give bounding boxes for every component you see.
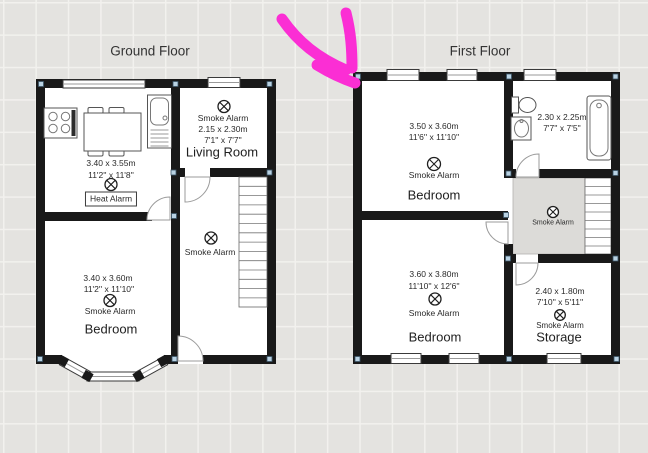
hallway-smoke-alarm-icon xyxy=(205,232,217,244)
storage-smoke-alarm-icon xyxy=(555,310,566,321)
living-room-smoke-alarm-icon xyxy=(218,101,230,113)
storage-dims-metric: 2.40 x 1.80m xyxy=(535,287,584,296)
toilet-icon xyxy=(512,97,537,113)
bedroom-gf-dims-imperial: 11'2'' x 11'10'' xyxy=(84,285,135,294)
kitchen-heat-alarm-icon xyxy=(105,179,117,191)
bedroom-front-name: Bedroom xyxy=(408,189,461,202)
landing-alarm-label: Smoke Alarm xyxy=(532,220,574,227)
dining-table-icon xyxy=(84,108,141,157)
storage-name: Storage xyxy=(536,331,582,344)
living-room-dims-metric: 2.15 x 2.30m xyxy=(198,125,247,134)
living-room-alarm-label: Smoke Alarm xyxy=(198,113,249,122)
landing-smoke-alarm-icon xyxy=(548,207,559,218)
living-room-name: Living Room xyxy=(186,146,258,159)
bedroom-gf-smoke-alarm-icon xyxy=(104,295,116,307)
bedroom-back-smoke-alarm-icon xyxy=(429,293,441,305)
bedroom-back-alarm-label: Smoke Alarm xyxy=(409,309,460,318)
kitchen-dims-metric: 3.40 x 3.55m xyxy=(86,159,135,168)
first-floor-stairs xyxy=(585,178,611,254)
bathroom-dims-imperial: 7'7'' x 7'5'' xyxy=(543,124,581,133)
bedroom-back-name: Bedroom xyxy=(409,331,462,344)
bedroom-front-smoke-alarm-icon xyxy=(428,158,441,171)
first-floor-title: First Floor xyxy=(450,44,511,58)
bedroom-back-dims-metric: 3.60 x 3.80m xyxy=(409,270,458,279)
heat-alarm-label: Heat Alarm xyxy=(85,191,137,206)
bedroom-back-dims-imperial: 11'10'' x 12'6'' xyxy=(408,281,459,290)
bathroom-dims-metric: 2.30 x 2.25m xyxy=(537,113,586,122)
kitchen-dims-imperial: 11'2'' x 11'8'' xyxy=(88,170,134,179)
ground-floor-stairs xyxy=(239,177,267,307)
storage-dims-imperial: 7'10'' x 5'11'' xyxy=(537,297,583,306)
annotation-arrow-icon xyxy=(282,13,355,83)
bedroom-front-dims-metric: 3.50 x 3.60m xyxy=(409,122,458,131)
ground-floor-title: Ground Floor xyxy=(110,44,190,58)
hallway-alarm-label: Smoke Alarm xyxy=(185,248,236,257)
floor-plan-drawing xyxy=(0,0,648,453)
washbasin-icon xyxy=(511,117,531,140)
bedroom-gf-alarm-label: Smoke Alarm xyxy=(85,307,136,316)
stove-icon xyxy=(44,108,77,138)
floor-plan-canvas: Ground Floor First Floor Smoke Alarm 2.1… xyxy=(0,0,648,453)
living-room-dims-imperial: 7'1'' x 7'7'' xyxy=(204,135,242,144)
sink-unit-icon xyxy=(148,95,172,148)
bedroom-front-dims-imperial: 11'6'' x 11'10'' xyxy=(409,133,460,142)
bedroom-gf-dims-metric: 3.40 x 3.60m xyxy=(83,274,132,283)
bedroom-front-alarm-label: Smoke Alarm xyxy=(409,171,460,180)
bathtub-icon xyxy=(587,96,611,160)
bedroom-gf-name: Bedroom xyxy=(85,323,138,336)
